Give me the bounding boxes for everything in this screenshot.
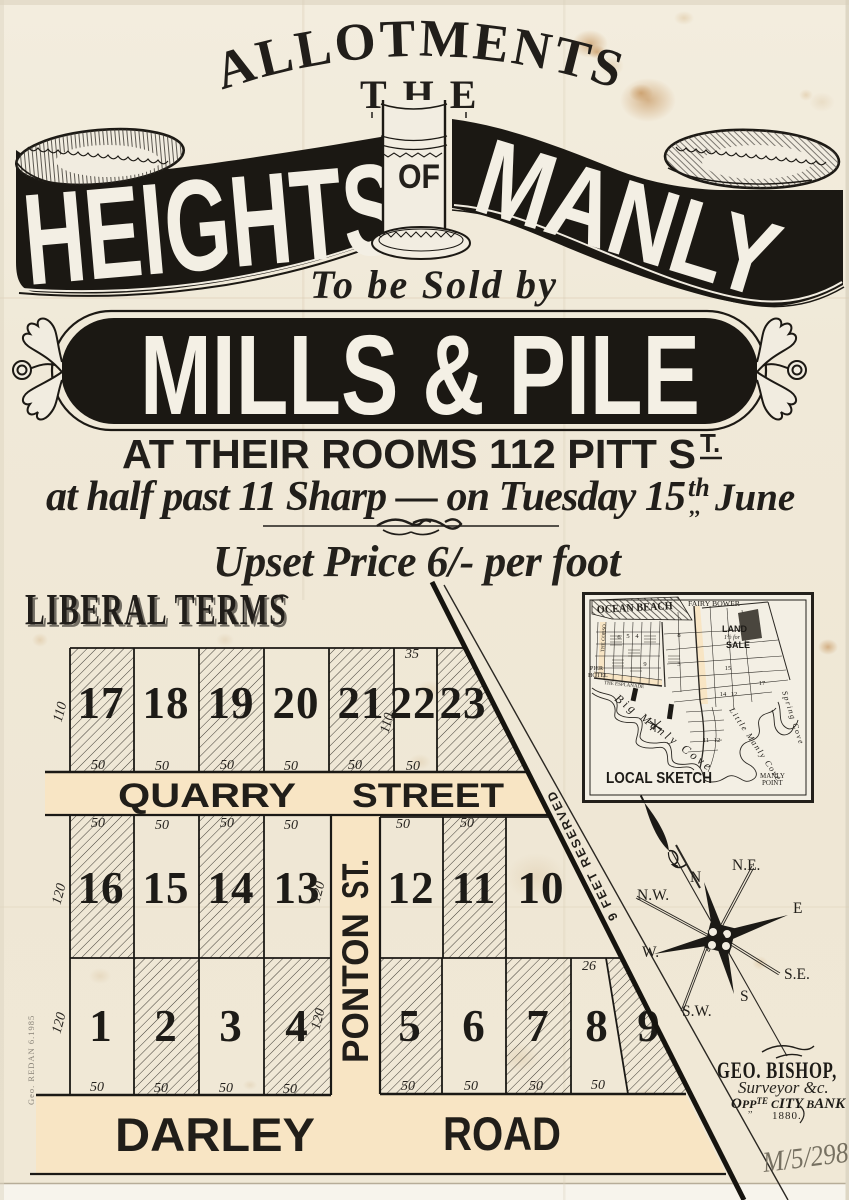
svg-text:5: 5	[626, 633, 629, 640]
svg-text:12: 12	[731, 691, 738, 698]
svg-text:,,: ,,	[689, 494, 701, 519]
svg-text:PONTON: PONTON	[335, 913, 376, 1063]
svg-text:Geo. REDAN 6.1985: Geo. REDAN 6.1985	[26, 1015, 36, 1105]
svg-text:1: 1	[89, 1001, 113, 1051]
svg-text:50: 50	[283, 1082, 297, 1097]
svg-text:50: 50	[529, 1079, 543, 1094]
svg-text:50: 50	[396, 817, 410, 832]
svg-text:MILLS & PILE: MILLS & PILE	[140, 312, 700, 438]
svg-text:N.E.: N.E.	[732, 857, 760, 874]
svg-text:50: 50	[154, 1081, 168, 1096]
svg-text:50: 50	[284, 759, 298, 774]
svg-text:S: S	[740, 988, 749, 1005]
svg-text:SALE: SALE	[726, 640, 750, 650]
svg-text:50: 50	[91, 758, 105, 773]
svg-text:2: 2	[154, 1001, 178, 1051]
svg-text:7: 7	[526, 1001, 550, 1051]
svg-text:June: June	[714, 476, 795, 519]
svg-text:22: 22	[390, 678, 437, 728]
svg-text:4: 4	[285, 1001, 309, 1051]
svg-text:E: E	[793, 900, 802, 917]
svg-text:14: 14	[720, 691, 727, 698]
svg-text:50: 50	[155, 759, 169, 774]
svg-text:1½ for: 1½ for	[724, 634, 741, 641]
svg-text:15: 15	[143, 863, 190, 913]
svg-text:50: 50	[220, 758, 234, 773]
svg-text:DARLEY: DARLEY	[115, 1108, 315, 1161]
svg-text:50: 50	[91, 816, 105, 831]
svg-text:12: 12	[388, 863, 435, 913]
svg-text:QUARRY: QUARRY	[118, 777, 296, 815]
svg-text:W.: W.	[642, 944, 659, 961]
svg-text:26: 26	[582, 959, 596, 974]
svg-text:AT THEIR ROOMS 112 PITT S: AT THEIR ROOMS 112 PITT S	[122, 431, 696, 477]
svg-text:50: 50	[591, 1078, 605, 1093]
svg-text:Upset Price 6/- per foot: Upset Price 6/- per foot	[213, 537, 623, 586]
svg-text:17: 17	[759, 680, 766, 687]
svg-text:S.E.: S.E.	[784, 966, 810, 983]
svg-text:,,: ,,	[748, 1104, 753, 1114]
svg-text:50: 50	[401, 1079, 415, 1094]
svg-text:20: 20	[273, 678, 320, 728]
svg-text:23: 23	[440, 678, 487, 728]
svg-text:8: 8	[585, 1001, 609, 1051]
svg-text:PIER: PIER	[590, 666, 603, 672]
svg-text:10: 10	[518, 863, 565, 913]
svg-text:N.W.: N.W.	[637, 887, 669, 904]
svg-text:19: 19	[208, 678, 255, 728]
svg-text:3: 3	[677, 661, 680, 668]
svg-text:50: 50	[284, 818, 298, 833]
svg-text:To be Sold by: To be Sold by	[310, 262, 558, 307]
svg-text:50: 50	[155, 818, 169, 833]
svg-text:T.: T.	[700, 428, 720, 458]
svg-text:N: N	[690, 869, 701, 886]
svg-text:21: 21	[338, 678, 385, 728]
svg-text:S.W.: S.W.	[682, 1003, 712, 1020]
svg-text:11: 11	[703, 737, 709, 744]
svg-text:14: 14	[208, 863, 255, 913]
svg-text:12: 12	[714, 737, 721, 744]
svg-text:Surveyor &c.: Surveyor &c.	[738, 1078, 829, 1097]
svg-text:9: 9	[643, 661, 646, 668]
svg-text:50: 50	[90, 1080, 104, 1095]
svg-text:HOTEL: HOTEL	[588, 673, 608, 679]
svg-text:35: 35	[404, 647, 419, 662]
svg-text:POINT: POINT	[762, 779, 783, 787]
svg-text:ST.: ST.	[335, 859, 376, 899]
svg-text:50: 50	[220, 816, 234, 831]
svg-text:17: 17	[78, 678, 125, 728]
svg-text:18: 18	[143, 678, 190, 728]
svg-text:ROAD: ROAD	[443, 1107, 561, 1160]
svg-text:50: 50	[464, 1079, 478, 1094]
svg-text:8: 8	[677, 632, 680, 639]
svg-text:16: 16	[78, 863, 125, 913]
svg-text:at half past 11 Sharp — on Tue: at half past 11 Sharp — on Tuesday 15	[46, 474, 686, 520]
svg-text:15: 15	[725, 665, 732, 672]
svg-text:11: 11	[452, 863, 497, 913]
svg-text:LIBERAL TERMS: LIBERAL TERMS	[25, 585, 287, 634]
svg-text:OF: OF	[398, 158, 440, 196]
svg-text:50: 50	[406, 759, 420, 774]
svg-text:6: 6	[462, 1001, 486, 1051]
svg-text:3: 3	[219, 1001, 243, 1051]
svg-text:LOCAL SKETCH: LOCAL SKETCH	[606, 770, 712, 787]
svg-text:1880.: 1880.	[772, 1110, 802, 1122]
svg-text:50: 50	[219, 1081, 233, 1096]
svg-text:STREET: STREET	[352, 777, 504, 815]
svg-text:5: 5	[398, 1001, 422, 1051]
svg-text:LAND: LAND	[722, 624, 747, 634]
svg-text:50: 50	[460, 816, 474, 831]
svg-text:50: 50	[348, 758, 362, 773]
